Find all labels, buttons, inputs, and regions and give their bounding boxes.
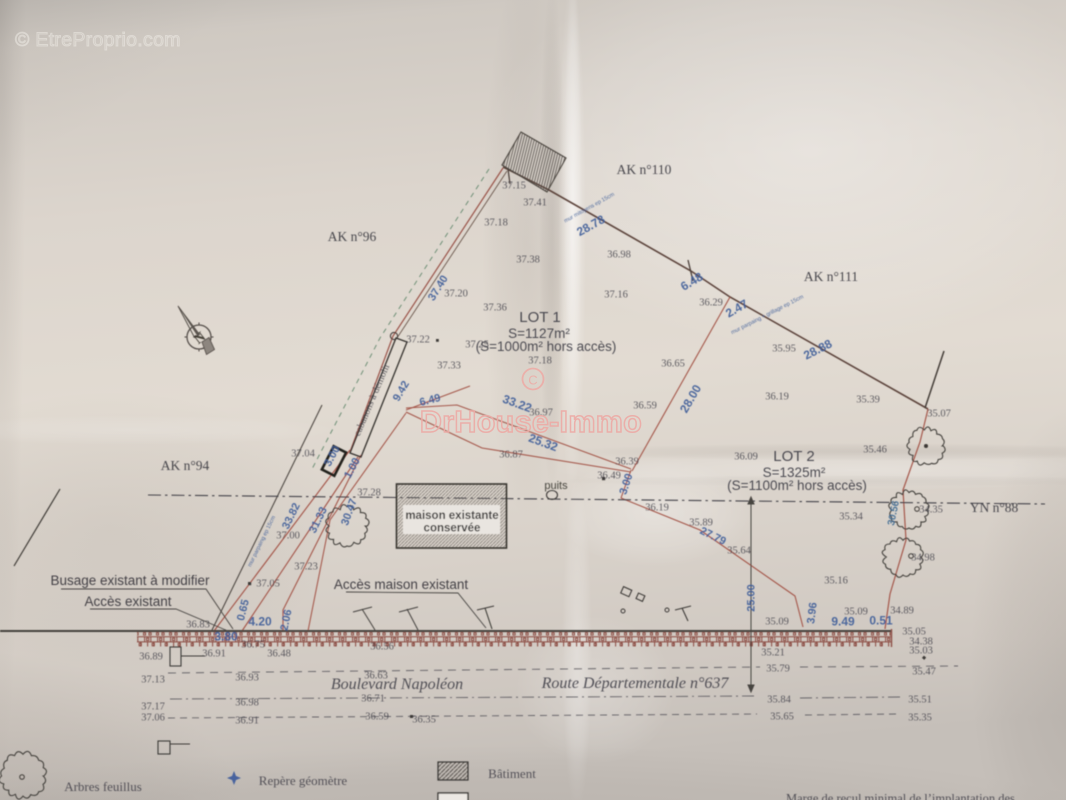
svg-text:Arbres feuillus: Arbres feuillus [64,779,142,794]
svg-text:35.16: 35.16 [824,576,848,587]
svg-text:37.18: 37.18 [484,218,508,229]
svg-text:37.06: 37.06 [141,713,165,724]
svg-text:37.23: 37.23 [294,562,318,573]
svg-text:36.91: 36.91 [202,649,226,660]
svg-text:36.29: 36.29 [699,298,723,309]
svg-text:(S=1100m² hors accès): (S=1100m² hors accès) [727,478,867,493]
svg-text:34.35: 34.35 [919,505,943,516]
svg-text:37.04: 37.04 [291,449,315,460]
svg-text:35.35: 35.35 [908,713,932,724]
svg-text:37.36: 37.36 [483,303,507,314]
svg-text:35.64: 35.64 [727,546,751,557]
svg-text:Marge de recul minimal de l’im: Marge de recul minimal de l’implantation… [786,792,1015,800]
svg-text:LOT 2: LOT 2 [773,448,814,465]
svg-text:35.09: 35.09 [765,617,789,628]
svg-text:37.20: 37.20 [444,289,468,300]
svg-text:Route Départementale n°637: Route Départementale n°637 [541,675,730,692]
svg-text:AK n°110: AK n°110 [617,162,672,177]
svg-text:36.98: 36.98 [607,250,631,261]
svg-text:Accès existant: Accès existant [84,594,171,609]
svg-text:36.56: 36.56 [370,642,394,653]
svg-text:puits: puits [544,480,568,492]
svg-text:35.47: 35.47 [912,667,936,678]
svg-text:36.48: 36.48 [267,649,291,660]
svg-text:36.98: 36.98 [235,698,259,709]
svg-text:36.49: 36.49 [597,471,621,482]
svg-text:35.03: 35.03 [909,646,933,657]
svg-text:35.21: 35.21 [761,648,785,659]
svg-text:35.07: 35.07 [927,409,951,420]
svg-text:36.93: 36.93 [235,673,259,684]
svg-text:0.51: 0.51 [869,614,893,628]
svg-text:37.13: 37.13 [141,675,165,686]
svg-text:36.87: 36.87 [499,450,523,461]
svg-text:YN n°88: YN n°88 [970,500,1019,515]
svg-text:35.46: 35.46 [863,445,887,456]
svg-text:conservée: conservée [424,523,481,535]
svg-text:36.39: 36.39 [615,457,639,468]
svg-text:25.00: 25.00 [746,584,758,612]
svg-text:35.39: 35.39 [856,395,880,406]
svg-text:36.09: 36.09 [734,452,758,463]
svg-text:Busage existant à modifier: Busage existant à modifier [50,573,210,588]
svg-text:AK n°111: AK n°111 [804,269,858,284]
svg-text:37.17: 37.17 [141,702,165,713]
svg-text:36.91: 36.91 [235,716,259,727]
svg-text:35.84: 35.84 [767,695,791,706]
svg-text:37.28: 37.28 [357,488,381,499]
svg-text:35.65: 35.65 [770,712,794,723]
svg-text:36.71: 36.71 [361,694,385,705]
svg-text:35.79: 35.79 [766,664,790,675]
svg-text:9.49: 9.49 [831,615,855,629]
svg-text:37.00: 37.00 [276,531,300,542]
svg-text:DrHouse-Immo: DrHouse-Immo [420,405,642,439]
svg-text:AK n°96: AK n°96 [328,229,377,244]
svg-text:Repère géomètre: Repère géomètre [259,773,348,788]
svg-text:35.51: 35.51 [908,695,932,706]
svg-text:37.41: 37.41 [523,198,547,209]
svg-text:37.38: 37.38 [516,255,540,266]
svg-text:35.95: 35.95 [772,344,796,355]
svg-text:36.19: 36.19 [645,503,669,514]
svg-text:(S=1000m² hors accès): (S=1000m² hors accès) [476,339,617,354]
svg-text:34.89: 34.89 [890,606,914,617]
svg-text:LOT 1: LOT 1 [519,309,560,326]
svg-text:37.15: 37.15 [502,181,526,192]
svg-text:35.34: 35.34 [839,512,863,523]
svg-text:C: C [528,373,537,388]
svg-text:37.22: 37.22 [406,335,430,346]
svg-text:Accès maison existant: Accès maison existant [334,577,469,592]
svg-text:Bâtiment: Bâtiment [488,766,536,781]
svg-text:maison existante: maison existante [405,510,498,522]
svg-text:AK n°94: AK n°94 [161,458,210,473]
svg-text:36.75: 36.75 [241,640,265,651]
svg-text:36.35: 36.35 [412,715,436,726]
svg-text:4.20: 4.20 [248,615,272,629]
svg-text:34.98: 34.98 [911,553,935,564]
svg-text:37.05: 37.05 [256,579,280,590]
svg-text:37.18: 37.18 [528,356,552,367]
svg-text:36.59: 36.59 [365,712,389,723]
svg-text:35.89: 35.89 [689,518,713,529]
svg-text:© EtreProprio.com: © EtreProprio.com [15,29,181,51]
svg-text:36.19: 36.19 [765,392,789,403]
svg-text:36.83: 36.83 [186,620,210,631]
svg-text:Boulevard Napoléon: Boulevard Napoléon [331,676,463,693]
svg-text:37.16: 37.16 [604,290,628,301]
svg-text:3.80: 3.80 [214,630,238,644]
svg-text:37.33: 37.33 [437,361,461,372]
svg-text:36.89: 36.89 [139,652,163,663]
svg-text:36.65: 36.65 [661,359,685,370]
